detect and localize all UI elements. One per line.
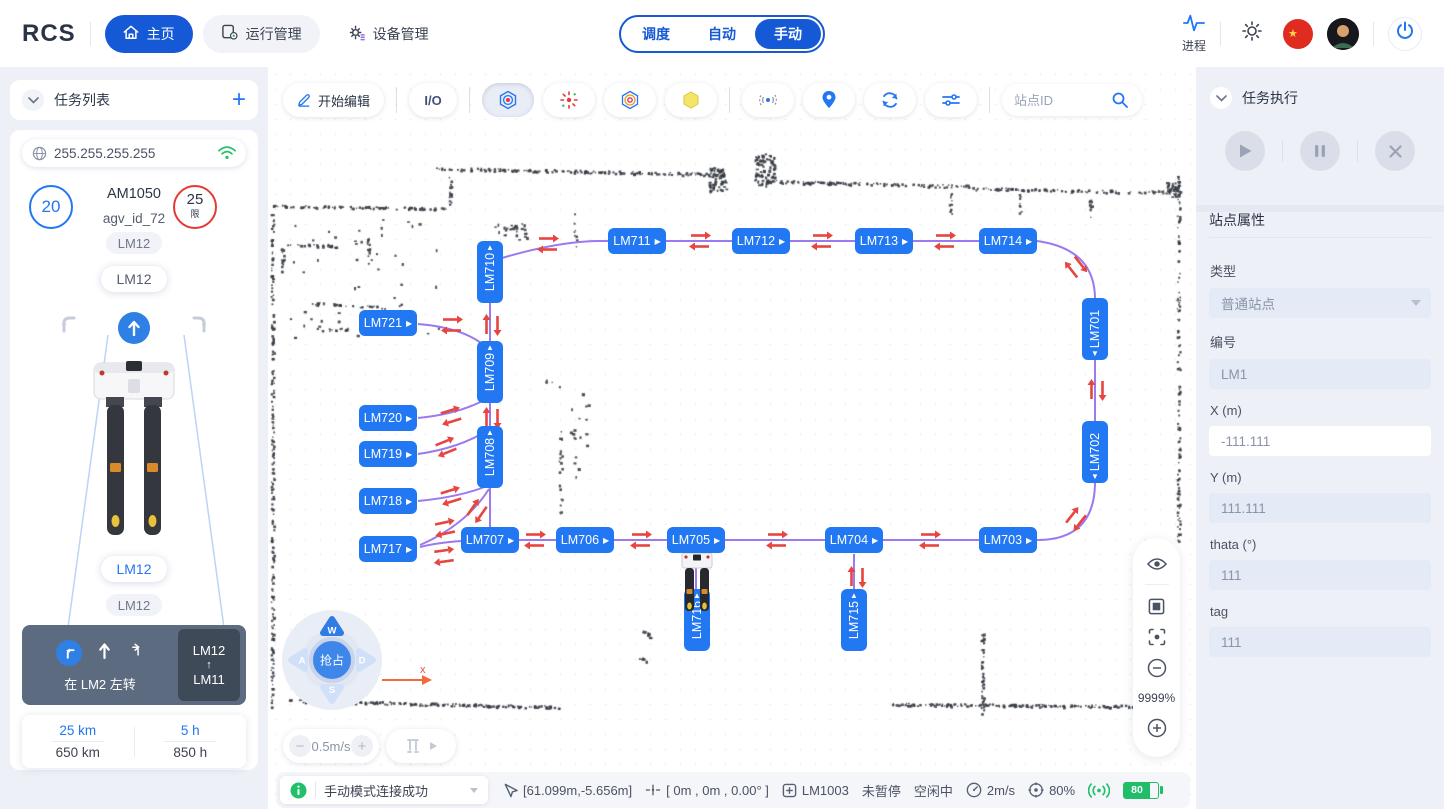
divider <box>1220 22 1221 46</box>
task-list-title: 任务列表 <box>54 90 222 110</box>
station-props-form: 类型普通站点编号LM1X (m)-111.111Y (m)111.111that… <box>1209 247 1431 657</box>
speed-value: 0.5m/s <box>311 739 350 754</box>
route-arrows <box>483 314 502 336</box>
power-icon <box>1395 21 1415 46</box>
svg-text:W: W <box>328 626 337 637</box>
field-label-1: 类型 <box>1210 261 1431 280</box>
exec-title: 任务执行 <box>1242 88 1298 108</box>
crosshair-icon <box>645 783 661 797</box>
vehicle-id: agv_id_72 <box>10 211 258 226</box>
lidar-button[interactable] <box>742 83 794 117</box>
nav-item-3[interactable]: 设备管理 <box>330 15 447 53</box>
instruction-text: 在 LM2 左转 <box>64 674 136 693</box>
speed-control: − 0.5m/s + <box>283 729 379 763</box>
main-nav: 主页运行管理设备管理 <box>105 15 447 53</box>
user-avatar[interactable] <box>1327 18 1359 50</box>
route-arrows <box>1062 252 1091 281</box>
field-label-5: thata (°) <box>1210 537 1431 552</box>
close-icon <box>1389 145 1402 158</box>
battery-level: 80 <box>1124 783 1150 798</box>
station-search <box>1002 84 1142 116</box>
layer-scatter-button[interactable] <box>543 83 595 117</box>
field-input-4[interactable]: 111.111 <box>1209 493 1431 523</box>
divider <box>1373 22 1374 46</box>
field-label-6: tag <box>1210 604 1431 619</box>
field-input-6[interactable]: 111 <box>1209 627 1431 657</box>
stat-1: 25 km650 km <box>22 723 134 760</box>
language-flag-button[interactable]: ★ <box>1283 19 1313 49</box>
chevron-down-icon <box>28 97 39 104</box>
forklift-graphic <box>94 361 174 535</box>
manual-joystick[interactable]: W A S D 抢占 <box>282 610 382 710</box>
io-button[interactable]: I/O <box>409 83 457 117</box>
station-LM713[interactable]: LM713▶ <box>855 228 913 254</box>
mode-switch: 调度自动手动 <box>619 15 825 53</box>
add-task-button[interactable]: + <box>232 90 246 110</box>
station-tag: LM12 <box>101 266 167 292</box>
field-label-2: 编号 <box>1210 332 1431 351</box>
speed-minus-button[interactable]: − <box>289 735 311 757</box>
fork-icon <box>405 738 421 754</box>
x-axis-indicator: x <box>380 663 436 694</box>
field-input-5[interactable]: 111 <box>1209 560 1431 590</box>
avatar-image <box>1327 18 1359 50</box>
locate-button[interactable] <box>803 83 855 117</box>
current-station-tag: LM12 <box>101 556 167 582</box>
signal-indicator <box>1088 783 1110 798</box>
cursor-icon <box>503 783 518 798</box>
cursor-coords: [61.099m,-5.656m] <box>503 783 632 798</box>
station-LM704[interactable]: LM704▶ <box>825 527 883 553</box>
route-arrows <box>432 545 456 567</box>
station-LM721[interactable]: LM721▶ <box>359 310 417 336</box>
divider <box>90 22 91 46</box>
station-LM712[interactable]: LM712▶ <box>732 228 790 254</box>
station-LM717[interactable]: LM717▶ <box>359 536 417 562</box>
chevron-down-icon <box>1216 95 1227 102</box>
speed-readout: 2m/s <box>966 782 1015 798</box>
navbar: RCS 主页运行管理设备管理 调度自动手动 进程 ★ <box>0 0 1444 67</box>
yellow-hexagon-icon <box>681 90 701 110</box>
station-LM711[interactable]: LM711▶ <box>608 228 666 254</box>
station-LM719[interactable]: LM719▶ <box>359 441 417 467</box>
field-label-4: Y (m) <box>1210 470 1431 485</box>
mode-3[interactable]: 手动 <box>755 19 821 49</box>
accuracy-readout: 80% <box>1028 782 1075 798</box>
sun-icon <box>1242 21 1262 46</box>
speed-limit-badge: 25限 <box>173 185 217 229</box>
station-LM710[interactable]: ▲LM710 <box>477 241 503 303</box>
play-icon <box>1238 143 1253 159</box>
connection-status[interactable]: 手动模式连接成功 <box>280 776 488 804</box>
map-area[interactable]: ▲LM710LM711▶LM712▶LM713▶LM714▶▼LM701▼LM7… <box>268 67 1196 809</box>
nav-icon <box>348 24 365 44</box>
layer-target-button[interactable] <box>604 83 656 117</box>
hexagon-node-icon <box>498 90 518 110</box>
station-LM702[interactable]: ▼LM702 <box>1082 421 1108 483</box>
ip-address: 255.255.255.255 <box>54 146 155 161</box>
app-root: RCS 主页运行管理设备管理 调度自动手动 进程 ★ <box>0 0 1444 809</box>
pause-icon <box>1314 144 1326 158</box>
app-logo: RCS <box>22 20 76 48</box>
field-input-3[interactable]: -111.111 <box>1209 426 1431 456</box>
speed-plus-button[interactable]: + <box>351 735 373 757</box>
target-icon <box>1028 782 1044 798</box>
eye-icon <box>1147 557 1167 571</box>
scatter-points-icon <box>559 90 579 110</box>
start-edit-button[interactable]: 开始编辑 <box>283 83 384 117</box>
theme-toggle-button[interactable] <box>1235 17 1269 51</box>
route-layer <box>268 67 1196 809</box>
nav-icon <box>123 25 139 43</box>
station-LM714[interactable]: LM714▶ <box>979 228 1037 254</box>
straight-icon <box>98 642 111 664</box>
field-input-2[interactable]: LM1 <box>1209 359 1431 389</box>
refresh-icon <box>880 90 900 110</box>
pause-state: 未暂停 <box>862 781 901 800</box>
caret-down-icon <box>470 788 478 793</box>
filter-button[interactable] <box>925 83 977 117</box>
task-cancel-button[interactable] <box>1375 131 1415 171</box>
refresh-button[interactable] <box>864 83 916 117</box>
nav-item-1[interactable]: 主页 <box>105 15 193 53</box>
route-arrows <box>537 235 559 254</box>
stats-card: 25 km650 km5 h850 h <box>22 715 246 768</box>
route-arrows <box>438 404 465 429</box>
map-pin-icon <box>821 90 837 110</box>
signal-icon <box>1088 783 1110 798</box>
stat-2: 5 h850 h <box>135 723 247 760</box>
svg-text:A: A <box>299 656 306 667</box>
zoom-out-button[interactable] <box>1147 658 1167 678</box>
plus-square-icon <box>782 783 797 798</box>
zoom-level: 9999% <box>1138 691 1175 705</box>
route-arrows <box>432 434 460 460</box>
minimap-button[interactable] <box>1148 598 1165 615</box>
props-title: 站点属性 <box>1209 210 1265 230</box>
info-icon <box>290 782 307 799</box>
pose-readout: [ 0m , 0m , 0.00° ] <box>645 783 769 798</box>
collapse-button[interactable] <box>22 89 44 111</box>
fork-control[interactable] <box>386 729 456 763</box>
svg-text:x: x <box>420 664 426 676</box>
mode-1[interactable]: 调度 <box>623 19 689 49</box>
station-LM715[interactable]: ▲LM715 <box>841 589 867 651</box>
agv-robot-marker[interactable] <box>679 553 715 622</box>
station-LM708[interactable]: ▲LM708 <box>477 426 503 488</box>
process-label: 进程 <box>1182 37 1206 54</box>
vehicle-card: 255.255.255.255 20 AM1050 agv_id_72 25限 … <box>10 130 258 770</box>
route-arrows <box>1088 379 1107 401</box>
plus-circle-icon <box>1147 718 1167 738</box>
wifi-icon <box>218 146 236 160</box>
mode-2[interactable]: 自动 <box>689 19 755 49</box>
play-small-icon <box>429 741 438 751</box>
svg-text:D: D <box>359 656 366 667</box>
power-button[interactable] <box>1388 17 1422 51</box>
status-message: 手动模式连接成功 <box>324 781 462 800</box>
minimap-icon <box>1148 598 1165 615</box>
current-station-readout: LM1003 <box>782 783 849 798</box>
nav-icon <box>221 24 238 43</box>
rings-icon <box>620 90 640 110</box>
process-button[interactable]: 进程 <box>1182 13 1206 54</box>
station-LM703[interactable]: LM703▶ <box>979 527 1037 553</box>
station-LM706[interactable]: LM706▶ <box>556 527 614 553</box>
station-search-input[interactable] <box>1014 93 1104 108</box>
map-toolbar: 开始编辑 I/O <box>283 83 1142 117</box>
waveform-icon <box>1183 13 1205 36</box>
star-icon: ★ <box>1288 27 1298 40</box>
visibility-button[interactable] <box>1147 557 1167 571</box>
dropdown-arrow-icon <box>1411 300 1421 306</box>
globe-icon <box>32 146 47 161</box>
route-arrows <box>848 566 867 588</box>
center-focus-button[interactable] <box>1148 628 1166 646</box>
task-pause-button[interactable] <box>1300 131 1340 171</box>
station-LM720[interactable]: LM720▶ <box>359 405 417 431</box>
status-bar: 手动模式连接成功 [61.099m,-5.656m] [ 0m , 0m , 0… <box>276 772 1190 808</box>
radar-icon <box>758 90 778 110</box>
vehicle-model: AM1050 <box>10 186 258 202</box>
collapse-exec-button[interactable] <box>1210 87 1232 109</box>
instruction-panel: 在 LM2 左转 LM12 ↑ LM11 <box>22 625 246 705</box>
route-arrows <box>463 497 491 526</box>
field-label-3: X (m) <box>1210 403 1431 418</box>
station-tag: LM12 <box>106 232 162 254</box>
minus-circle-icon <box>1147 658 1167 678</box>
svg-text:S: S <box>329 685 335 696</box>
task-list-panel: 任务列表 + 255.255.255.255 20 AM1050 agv_id_… <box>0 67 268 809</box>
focus-icon <box>1148 628 1166 646</box>
station-LM709[interactable]: ▲LM709 <box>477 341 503 403</box>
run-state: 空闲中 <box>914 781 953 800</box>
route-box: LM12 ↑ LM11 <box>178 629 240 701</box>
forklift-illustration <box>22 335 246 635</box>
pencil-icon <box>297 93 311 107</box>
speedometer-icon <box>966 782 982 798</box>
nav-item-2[interactable]: 运行管理 <box>203 15 320 53</box>
station-LM705[interactable]: LM705▶ <box>667 527 725 553</box>
route-arrows <box>441 316 463 335</box>
layer-zone-button[interactable] <box>665 83 717 117</box>
next-station-tag: LM12 <box>106 594 162 616</box>
seize-button: 抢占 <box>320 653 344 668</box>
field-select-1[interactable]: 普通站点 <box>1209 288 1431 318</box>
turn-left-active-icon <box>56 640 82 666</box>
task-exec-panel: 任务执行 站点属性 类型普通站点编号LM1X (m)-111.111Y (m)1… <box>1196 67 1444 809</box>
station-LM718[interactable]: LM718▶ <box>359 488 417 514</box>
turn-right-small-icon <box>127 642 144 663</box>
sliders-icon <box>941 91 961 109</box>
search-icon[interactable] <box>1112 92 1128 108</box>
battery-indicator: 80 <box>1123 782 1163 799</box>
station-LM707[interactable]: LM707▶ <box>461 527 519 553</box>
task-play-button[interactable] <box>1225 131 1265 171</box>
layer-station-button[interactable] <box>482 83 534 117</box>
vehicle-ip[interactable]: 255.255.255.255 <box>22 139 246 167</box>
zoom-in-button[interactable] <box>1147 718 1167 738</box>
map-view-controls: 9999% <box>1133 538 1180 757</box>
station-LM701[interactable]: ▼LM701 <box>1082 298 1108 360</box>
